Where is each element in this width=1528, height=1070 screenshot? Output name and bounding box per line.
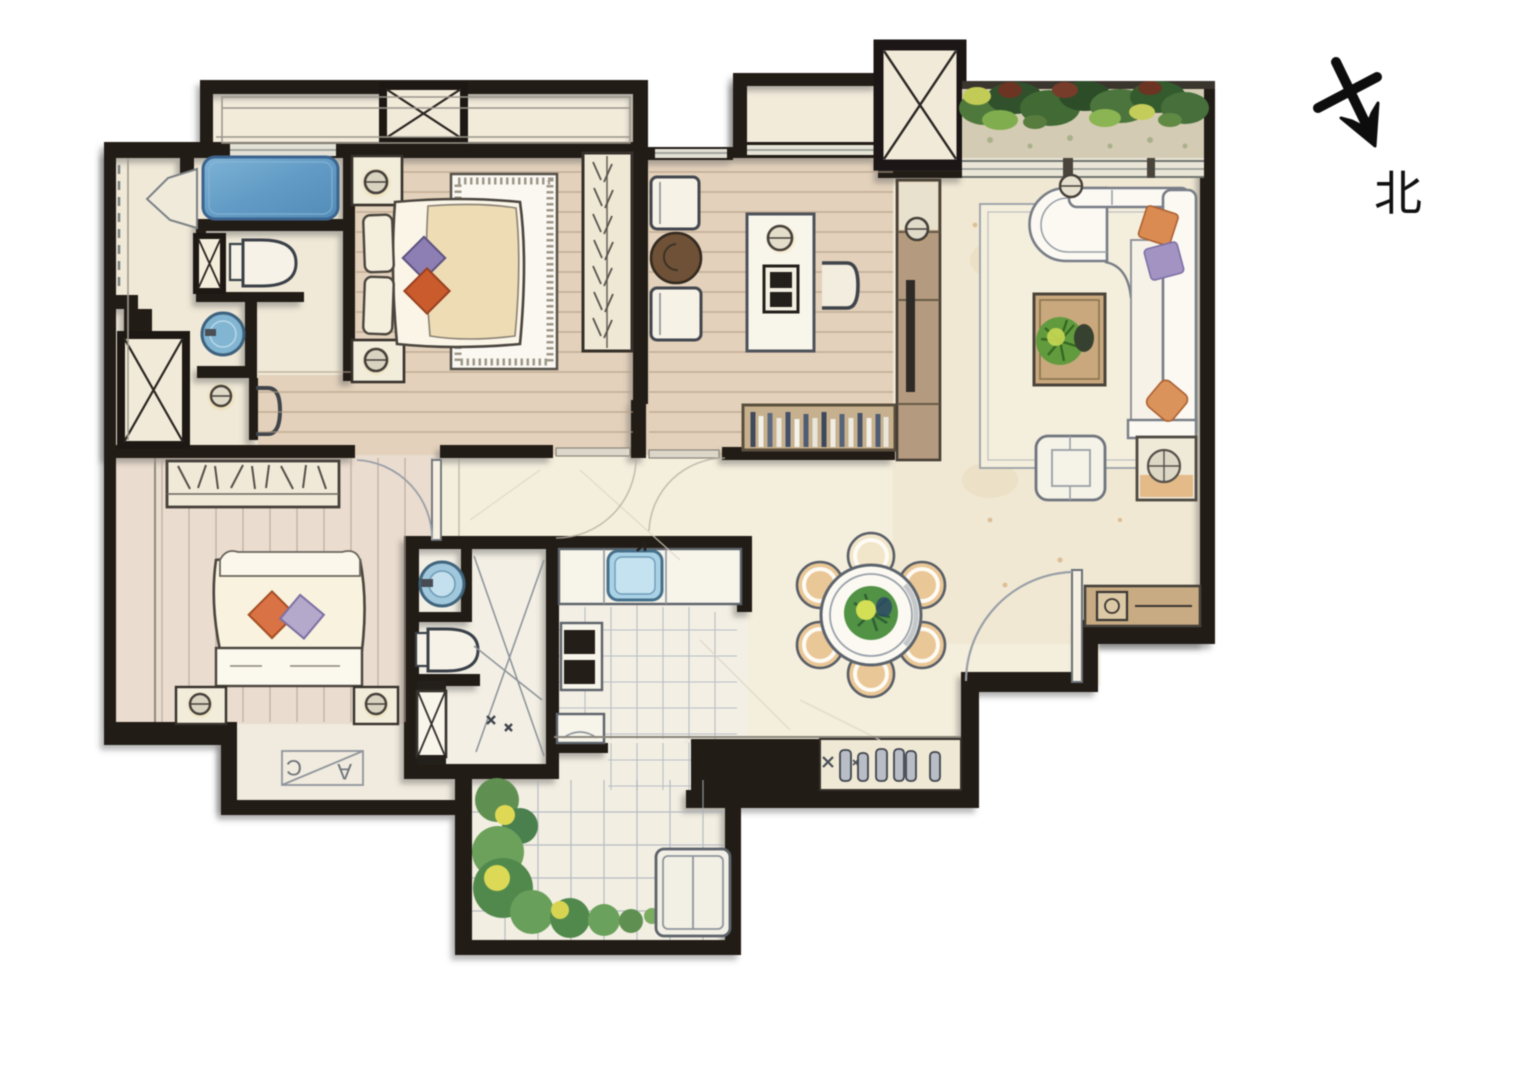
svg-text:A: A xyxy=(337,759,352,784)
svg-text:北: 北 xyxy=(1374,168,1422,221)
svg-text:C: C xyxy=(286,755,302,780)
